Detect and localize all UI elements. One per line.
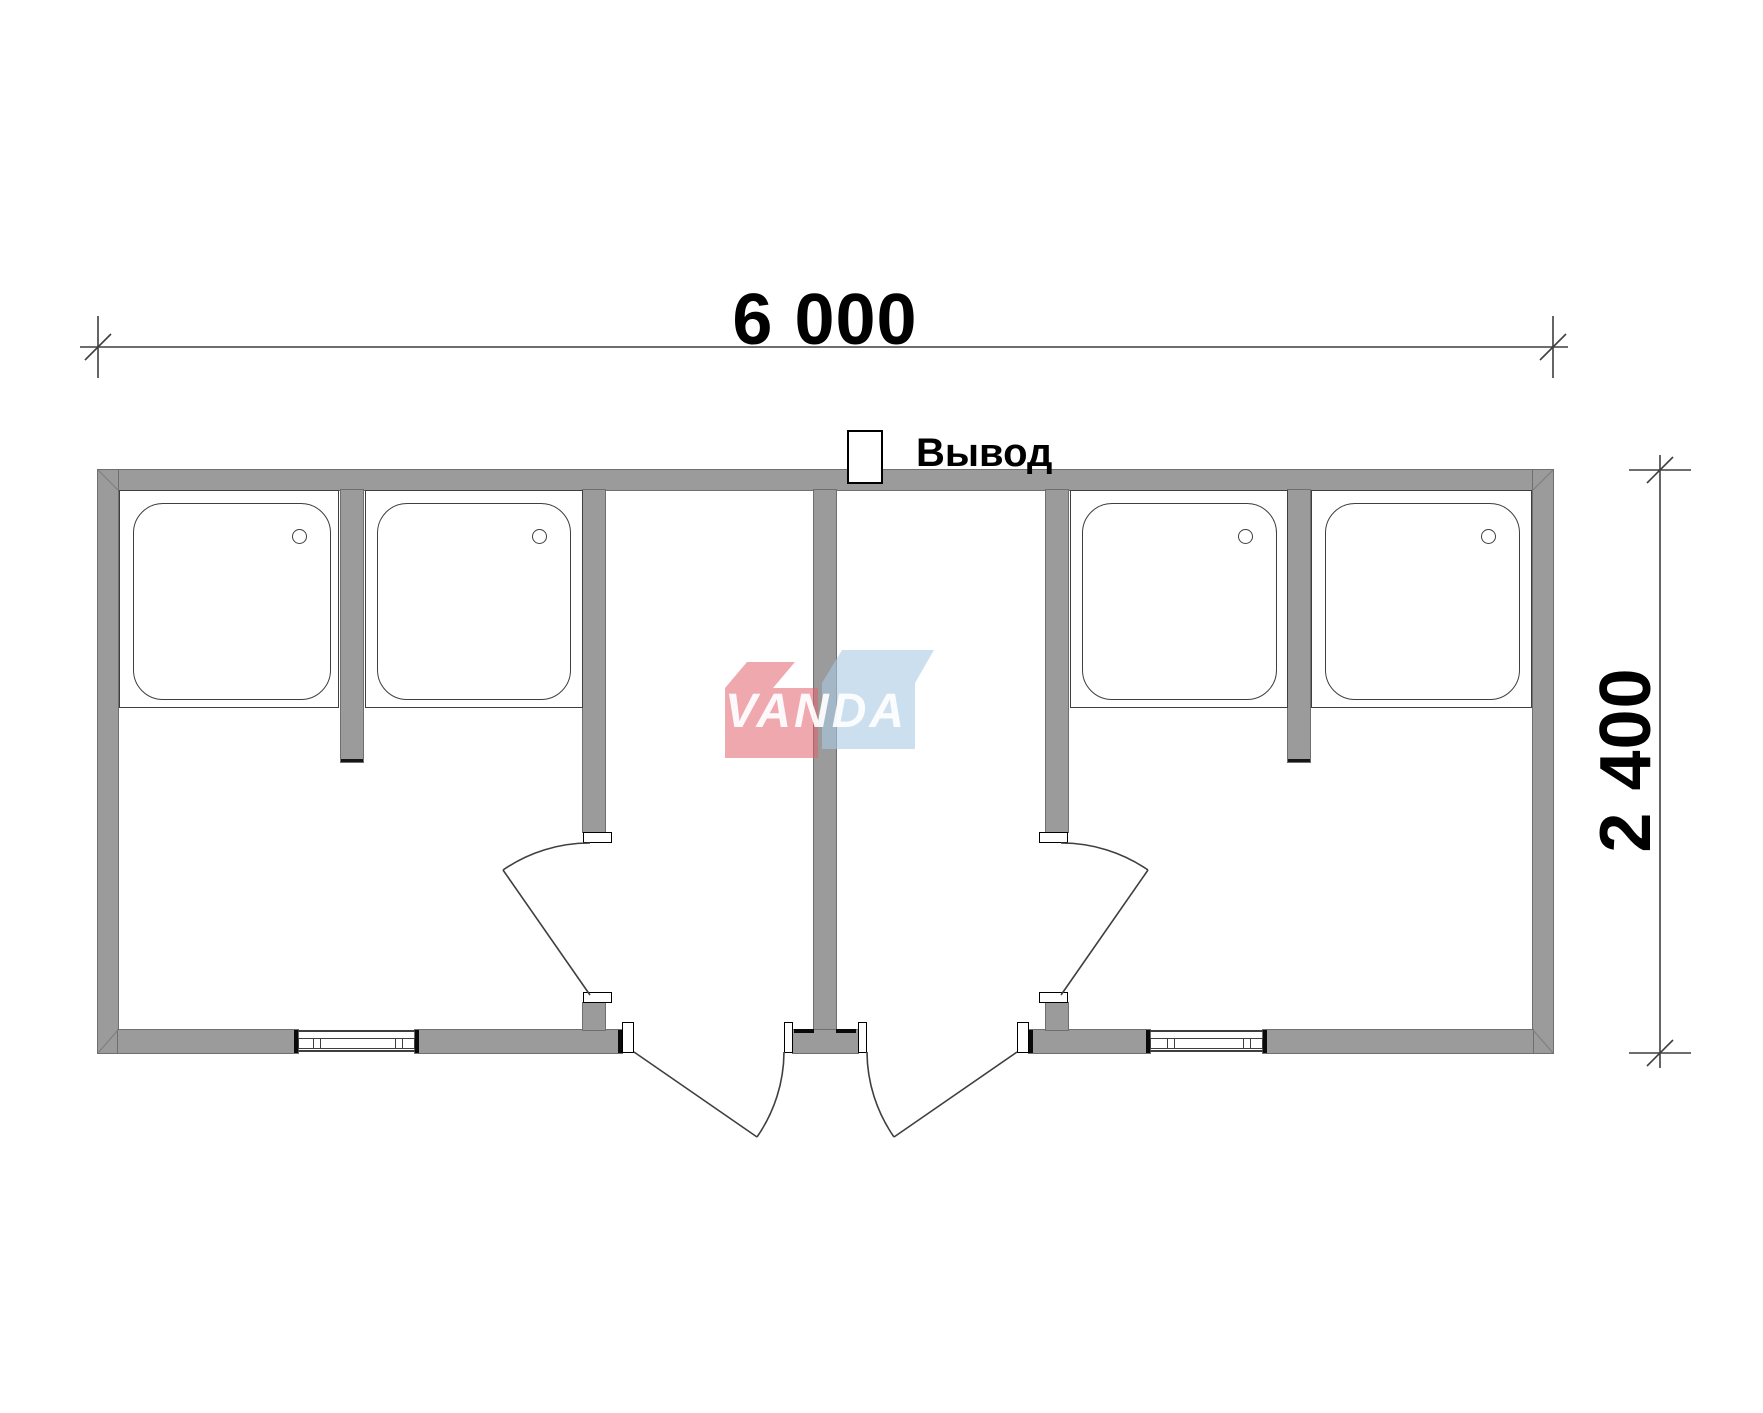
watermark-blue-box-lid [822, 650, 934, 683]
entrance-door-left [634, 1052, 784, 1137]
door-leaf [503, 870, 590, 995]
door-leaf [1061, 870, 1148, 995]
floor-plan-canvas: 6 000 2 400 Вывод VANDA [0, 0, 1763, 1413]
dimension-label-height: 2 400 [1590, 660, 1662, 860]
watermark-text: VANDA [666, 684, 966, 740]
interior-door-left [503, 843, 590, 995]
wall-miter-lines [98, 470, 1553, 1053]
door-swing-arc [867, 1052, 894, 1137]
door-swing-arc [503, 843, 590, 870]
interior-door-right [1061, 843, 1148, 995]
dimension-label-width: 6 000 [625, 284, 1025, 356]
entrance-door-right [867, 1052, 1017, 1137]
door-swing-arc [757, 1052, 784, 1137]
outlet-label: Вывод [916, 432, 1052, 474]
door-leaf [894, 1052, 1017, 1137]
door-leaf [634, 1052, 757, 1137]
door-swing-arc [1061, 843, 1148, 870]
